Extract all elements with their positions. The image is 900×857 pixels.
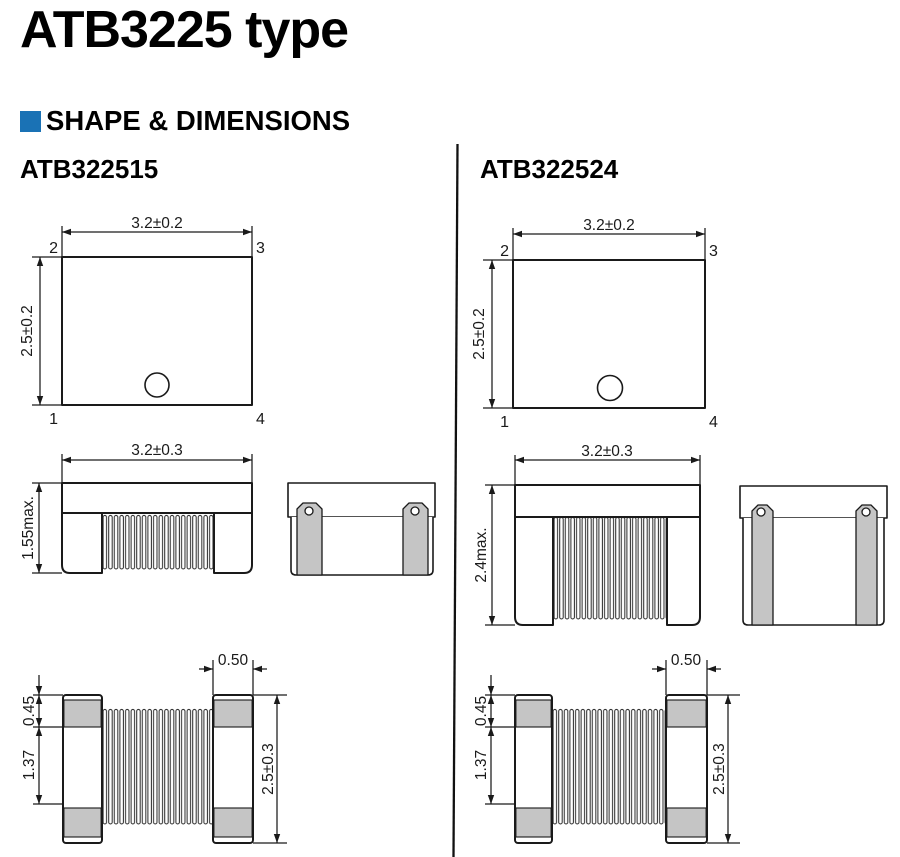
terminal-hole-icon <box>411 507 419 515</box>
drawing-side-view-left: 3.2±0.3 1.55max. <box>10 440 275 585</box>
pin-label-4: 4 <box>709 414 718 431</box>
terminal-left <box>297 503 322 575</box>
dim-terminal-width-label: 0.50 <box>671 652 702 669</box>
dim-height-label: 2.5±0.2 <box>19 305 36 357</box>
drawing-top-view-right: 3.2±0.2 2.5±0.2 2 3 1 4 <box>466 210 731 435</box>
dim-height: 2.5±0.3 <box>707 695 740 843</box>
drawing-end-view-left <box>286 476 441 584</box>
dim-height-label: 1.55max. <box>20 496 37 560</box>
terminal-hole-icon <box>862 508 870 516</box>
polarity-mark <box>598 376 623 401</box>
pin-label-4: 4 <box>256 411 265 428</box>
dim-inner-length-label: 1.37 <box>21 750 38 780</box>
terminal-hole-icon <box>305 507 313 515</box>
drawing-end-view-right <box>738 478 893 633</box>
dim-height: 2.5±0.2 <box>19 257 62 405</box>
terminal-left <box>752 505 773 625</box>
section-header: SHAPE & DIMENSIONS <box>20 106 350 136</box>
dim-inner-length-label: 1.37 <box>473 750 490 780</box>
dim-width-label: 3.2±0.3 <box>581 443 633 460</box>
dim-inner-length: 1.37 <box>473 727 491 804</box>
terminal-hole-icon <box>757 508 765 516</box>
flange-left <box>63 695 102 843</box>
dim-terminal-width: 0.50 <box>199 652 267 695</box>
datasheet-page: ATB3225 type SHAPE & DIMENSIONS ATB32251… <box>0 0 900 857</box>
dim-width-label: 3.2±0.2 <box>583 217 635 234</box>
dim-width: 3.2±0.2 <box>62 215 252 257</box>
dim-terminal-band-label: 0.45 <box>473 696 490 726</box>
coil-winding <box>102 708 213 827</box>
drawing-top-view-left: 3.2±0.2 2.5±0.2 2 3 1 4 <box>15 208 280 433</box>
dim-inner-length: 1.37 <box>21 727 39 804</box>
dim-height-label: 2.5±0.3 <box>711 743 728 795</box>
pin-label-2: 2 <box>49 240 58 257</box>
dim-terminal-band: 0.45 <box>473 675 515 804</box>
part-number-right: ATB322524 <box>480 154 618 185</box>
dim-width: 3.2±0.3 <box>515 443 700 485</box>
pin-label-3: 3 <box>709 243 718 260</box>
terminal-right <box>403 503 428 575</box>
part-number-left: ATB322515 <box>20 154 158 185</box>
dim-terminal-band-label: 0.45 <box>21 696 38 726</box>
section-bullet-icon <box>20 111 41 132</box>
pin-label-2: 2 <box>500 243 509 260</box>
dim-width: 3.2±0.2 <box>513 217 705 260</box>
dim-height-label: 2.5±0.2 <box>471 308 488 360</box>
coil-winding <box>552 708 666 827</box>
dim-height: 2.5±0.2 <box>471 260 513 408</box>
pin-label-1: 1 <box>49 411 58 428</box>
dim-width-label: 3.2±0.3 <box>131 442 183 459</box>
drawing-side-view-right: 3.2±0.3 2.4max. <box>462 440 727 635</box>
flange-right <box>666 695 707 843</box>
pin-label-3: 3 <box>256 240 265 257</box>
dim-width-label: 3.2±0.2 <box>131 215 183 232</box>
dim-height: 1.55max. <box>20 483 62 573</box>
page-title: ATB3225 type <box>20 0 348 60</box>
coil-winding <box>553 516 667 622</box>
dim-terminal-width: 0.50 <box>652 652 721 695</box>
drawing-bottom-view-left: 0.50 0.45 1.37 2.5±0.3 <box>15 646 335 851</box>
coil-winding <box>102 514 214 572</box>
dim-height-label: 2.5±0.3 <box>260 743 277 795</box>
dim-height: 2.5±0.3 <box>253 695 287 843</box>
dim-terminal-width-label: 0.50 <box>218 652 249 669</box>
flange-right <box>213 695 253 843</box>
section-title: SHAPE & DIMENSIONS <box>46 105 350 137</box>
polarity-mark <box>145 373 169 397</box>
dim-height: 2.4max. <box>473 485 515 625</box>
flange-left <box>515 695 552 843</box>
dim-terminal-band: 0.45 <box>21 675 63 804</box>
dim-width: 3.2±0.3 <box>62 442 252 483</box>
dim-height-label: 2.4max. <box>473 527 490 582</box>
terminal-right <box>856 505 877 625</box>
pin-label-1: 1 <box>500 414 509 431</box>
drawing-bottom-view-right: 0.50 0.45 1.37 2.5±0.3 <box>467 646 787 851</box>
